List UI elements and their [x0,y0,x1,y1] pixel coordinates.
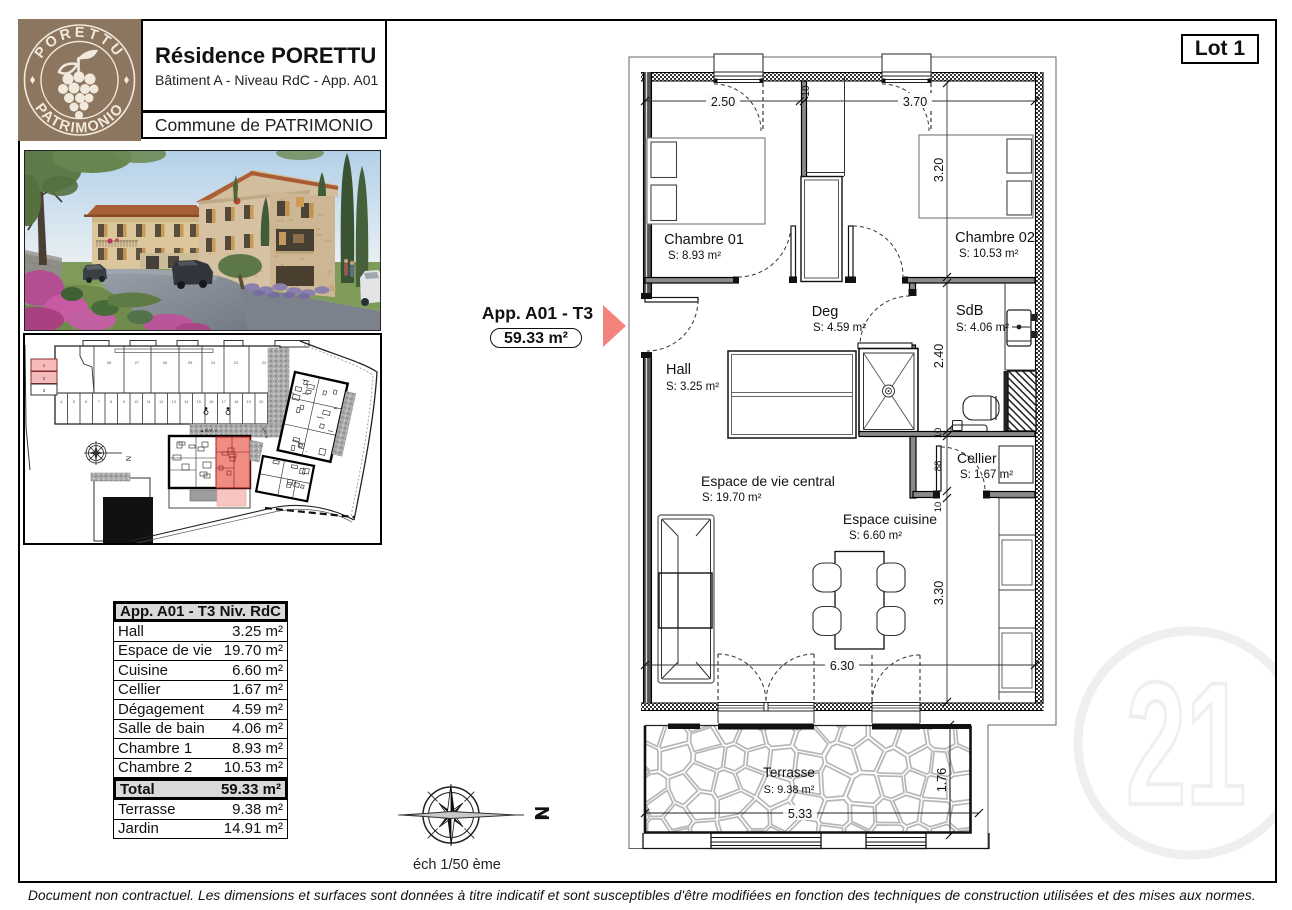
svg-text:2.50: 2.50 [711,95,735,109]
svg-text:PORETTU: PORETTU [32,25,127,62]
svg-text:Espace cuisine: Espace cuisine [843,511,937,527]
svg-text:S: 9.38 m²: S: 9.38 m² [764,784,815,796]
svg-text:N: N [530,806,552,820]
svg-text:Terrasse: Terrasse [763,765,815,780]
svg-text:S: 4.59 m²: S: 4.59 m² [813,322,866,334]
svg-text:S: 19.70 m²: S: 19.70 m² [702,492,762,504]
svg-text:2.40: 2.40 [932,344,946,368]
svg-text:10: 10 [801,85,812,97]
svg-text:S: 4.06 m²: S: 4.06 m² [956,322,1009,334]
svg-text:S: 6.60 m²: S: 6.60 m² [849,530,902,542]
svg-text:SdB: SdB [956,303,983,319]
svg-text:S: 3.25 m²: S: 3.25 m² [666,381,719,393]
svg-text:S: 8.93 m²: S: 8.93 m² [668,250,721,262]
svg-text:6.30: 6.30 [830,659,854,673]
svg-text:Cellier: Cellier [957,450,997,466]
svg-text:Chambre 02: Chambre 02 [955,230,1035,246]
svg-text:3.30: 3.30 [932,581,946,605]
svg-text:1.76: 1.76 [935,768,949,792]
svg-text:10: 10 [933,428,944,439]
svg-text:S: 10.53 m²: S: 10.53 m² [959,248,1019,260]
svg-text:S: 1.67 m²: S: 1.67 m² [960,469,1013,481]
svg-text:Deg: Deg [812,304,839,320]
svg-text:3.20: 3.20 [932,158,946,182]
svg-text:Hall: Hall [666,362,691,378]
svg-text:3.70: 3.70 [903,95,927,109]
svg-text:Chambre 01: Chambre 01 [664,232,744,248]
svg-text:88: 88 [933,461,944,472]
svg-text:5.33: 5.33 [788,807,812,821]
svg-text:Espace de vie central: Espace de vie central [701,473,835,489]
